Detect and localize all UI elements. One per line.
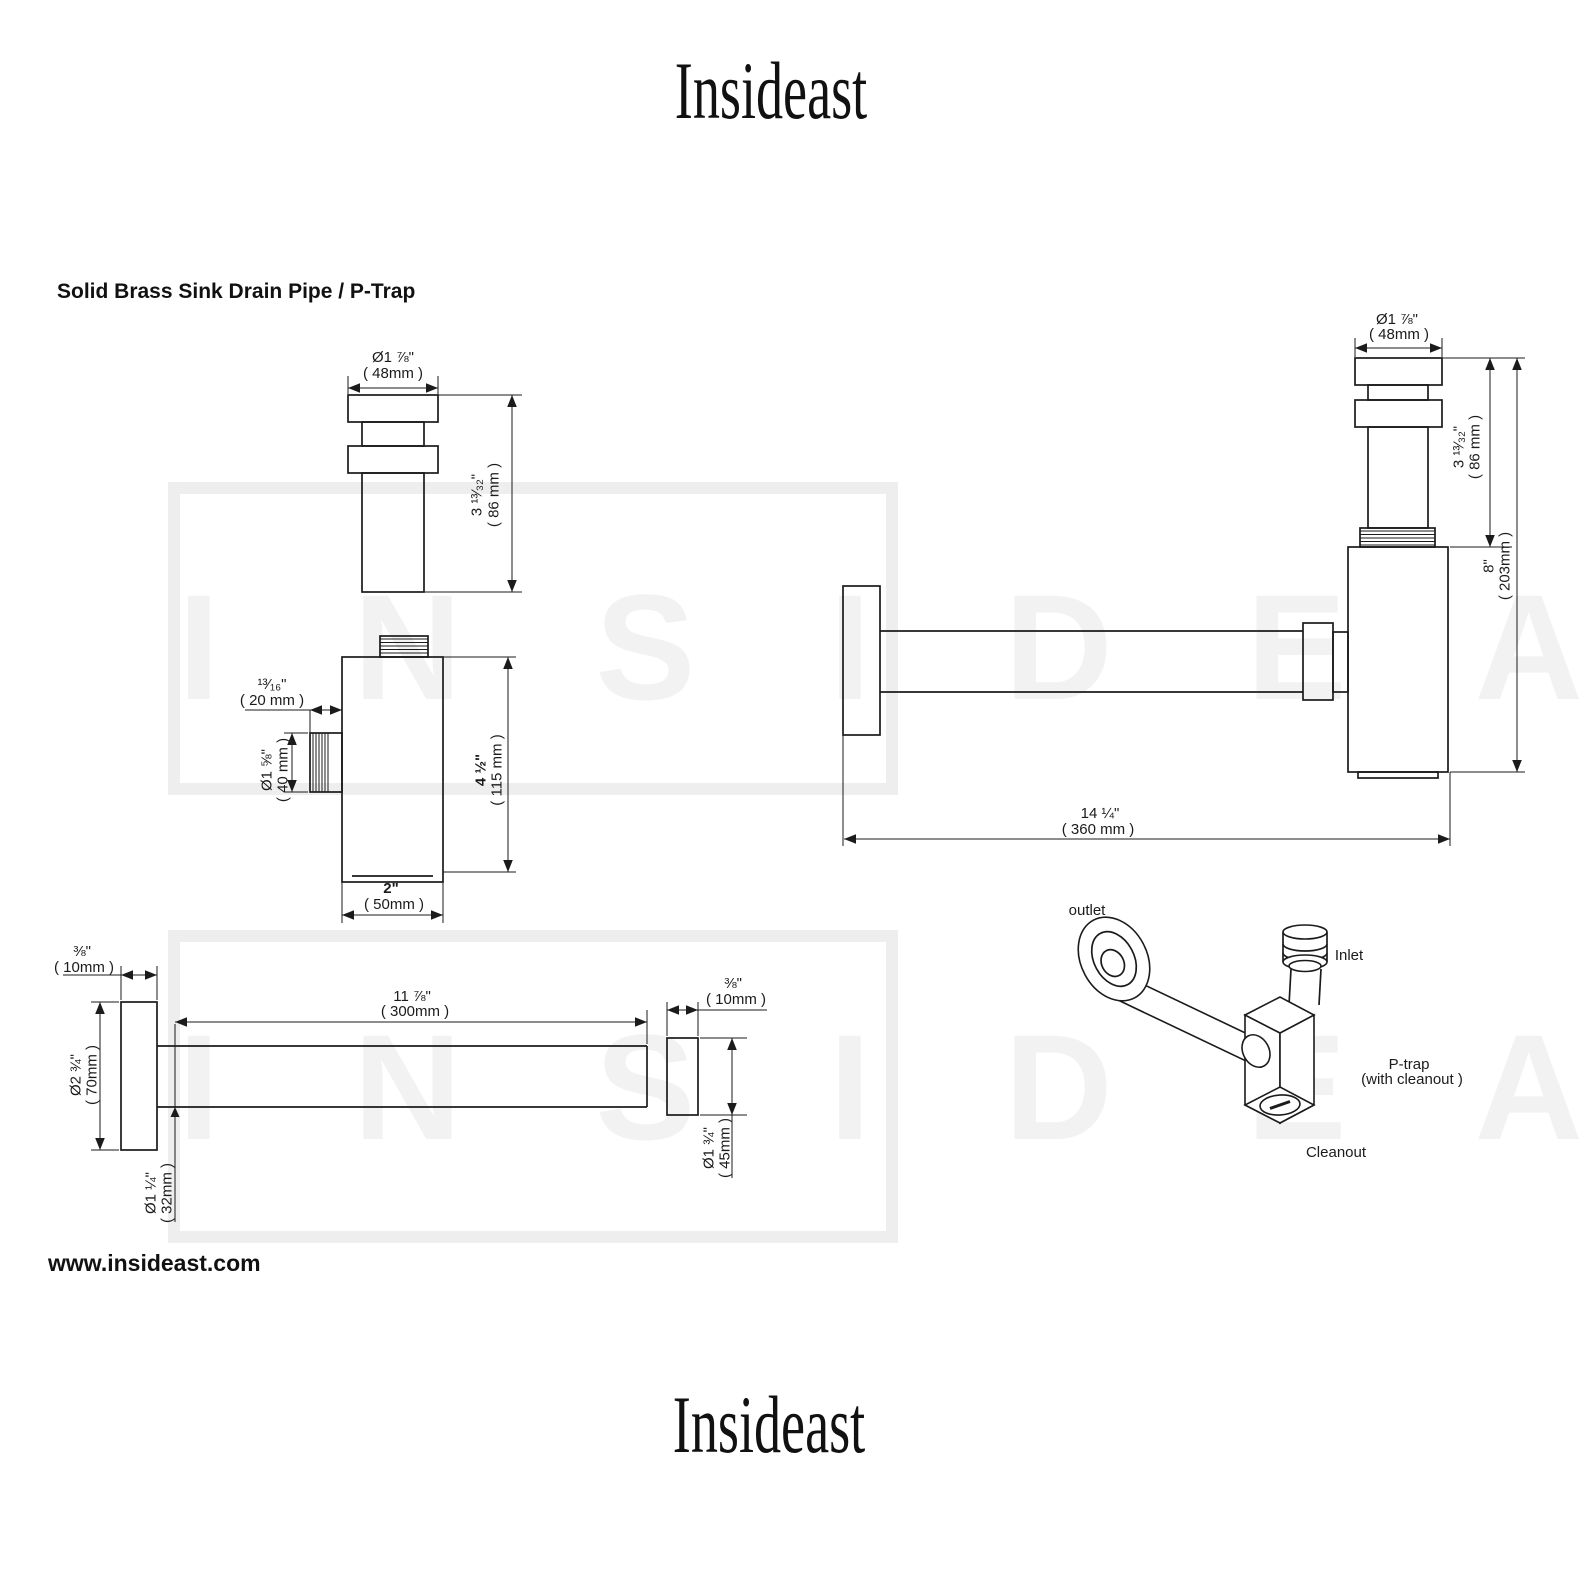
- dim-sleeve-thickness-in: ⅜": [724, 976, 742, 992]
- dim-tailpiece-diameter-mm: ( 48mm ): [363, 366, 423, 382]
- dim-trap-height-mm: ( 115 mm ): [490, 734, 505, 805]
- dim-trap-width-mm: ( 50mm ): [364, 897, 424, 913]
- label-ptrap-cleanout: (with cleanout ): [1361, 1071, 1463, 1088]
- label-outlet: outlet: [1069, 902, 1106, 919]
- dim-sleeve-diameter-mm: ( 45mm ): [718, 1118, 733, 1178]
- dim-assembly-tail-length-in: 3 ¹³⁄₃₂": [1452, 426, 1467, 468]
- dim-assembly-tail-length-mm: ( 86 mm ): [1468, 415, 1483, 479]
- dim-tailpiece-diameter-in: Ø1 ⅞": [372, 350, 414, 366]
- dim-flange-thickness-mm: ( 10mm ): [54, 960, 114, 976]
- isometric-view: [1040, 875, 1400, 1175]
- dim-sleeve-diameter-in: Ø1 ¾": [702, 1127, 717, 1169]
- dim-trap-outlet-diameter-mm: ( 40 mm ): [276, 738, 291, 802]
- dim-sleeve-thickness-mm: ( 10mm ): [706, 992, 766, 1008]
- dim-tube-diameter-mm: ( 32mm ): [160, 1163, 175, 1223]
- dim-trap-outlet-diameter-in: Ø1 ⅝": [260, 749, 275, 791]
- dim-assembly-height-mm: ( 203mm ): [1498, 532, 1513, 600]
- dim-trap-offset-mm: ( 20 mm ): [240, 693, 304, 709]
- website-url: www.insideast.com: [48, 1250, 261, 1277]
- dim-trap-offset-in: ¹³⁄₁₆": [258, 677, 287, 693]
- dim-assembly-reach-mm: ( 360 mm ): [1062, 822, 1135, 838]
- spec-sheet: I N S I D E A S T I N S I D E A S T Insi…: [0, 0, 1588, 1588]
- assembly-side-view: [830, 300, 1530, 850]
- dim-flange-diameter-mm: ( 70mm ): [85, 1045, 100, 1105]
- dim-tube-diameter-in: Ø1 ¼": [144, 1172, 159, 1214]
- dim-tube-length-mm: ( 300mm ): [381, 1004, 449, 1020]
- label-cleanout: Cleanout: [1306, 1144, 1366, 1161]
- tailpiece-side-view: [300, 340, 560, 610]
- dim-trap-width-in: 2": [383, 881, 398, 897]
- dim-flange-diameter-in: Ø2 ¾": [69, 1054, 84, 1096]
- dim-flange-thickness-in: ⅜": [73, 944, 91, 960]
- dim-tailpiece-length-in: 3 ¹³⁄₃₂": [470, 474, 485, 516]
- dim-trap-height-in: 4 ½": [474, 754, 489, 786]
- dim-assembly-height-in: 8": [1482, 559, 1497, 573]
- label-inlet: Inlet: [1335, 947, 1363, 964]
- dim-assembly-diameter-mm: ( 48mm ): [1369, 327, 1429, 343]
- dim-assembly-reach-in: 14 ¼": [1081, 806, 1120, 822]
- dim-tailpiece-length-mm: ( 86 mm ): [487, 463, 502, 527]
- page-title: Solid Brass Sink Drain Pipe / P-Trap: [57, 280, 415, 304]
- brand-logo-top: Insideast: [675, 50, 867, 132]
- brand-logo-bottom: Insideast: [673, 1384, 865, 1466]
